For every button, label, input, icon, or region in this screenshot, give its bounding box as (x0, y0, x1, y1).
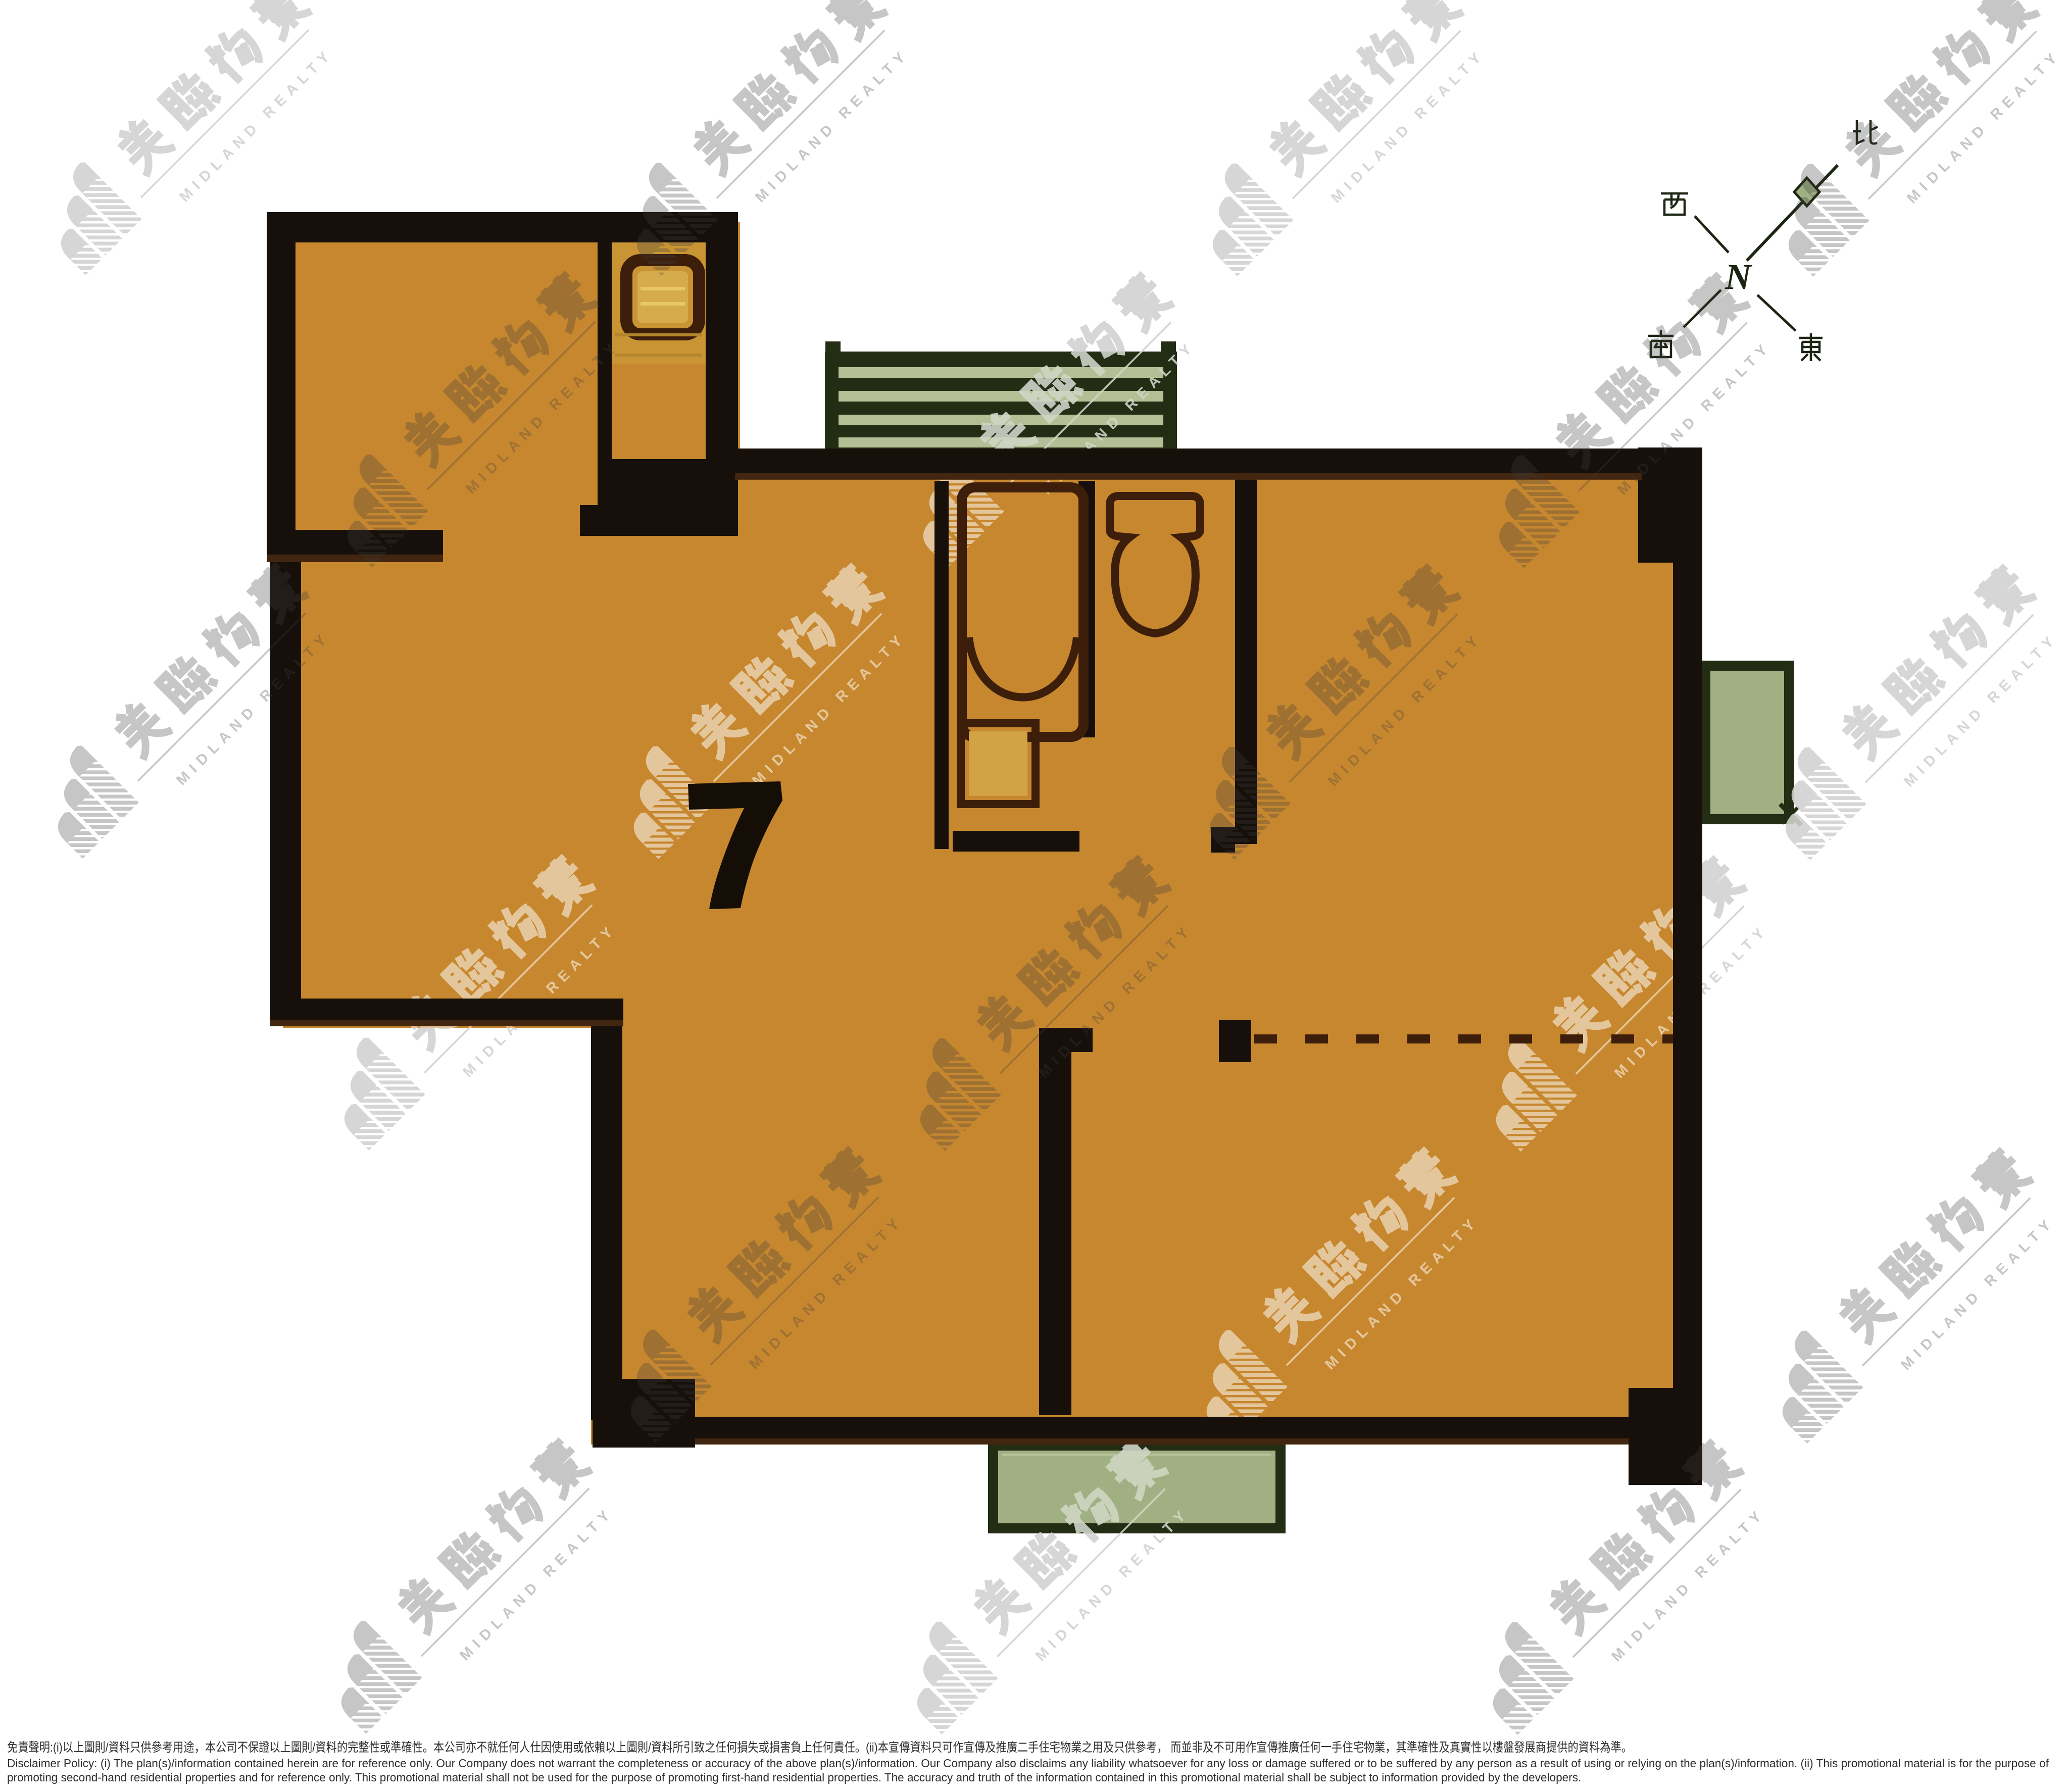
svg-text:N: N (1725, 257, 1753, 297)
